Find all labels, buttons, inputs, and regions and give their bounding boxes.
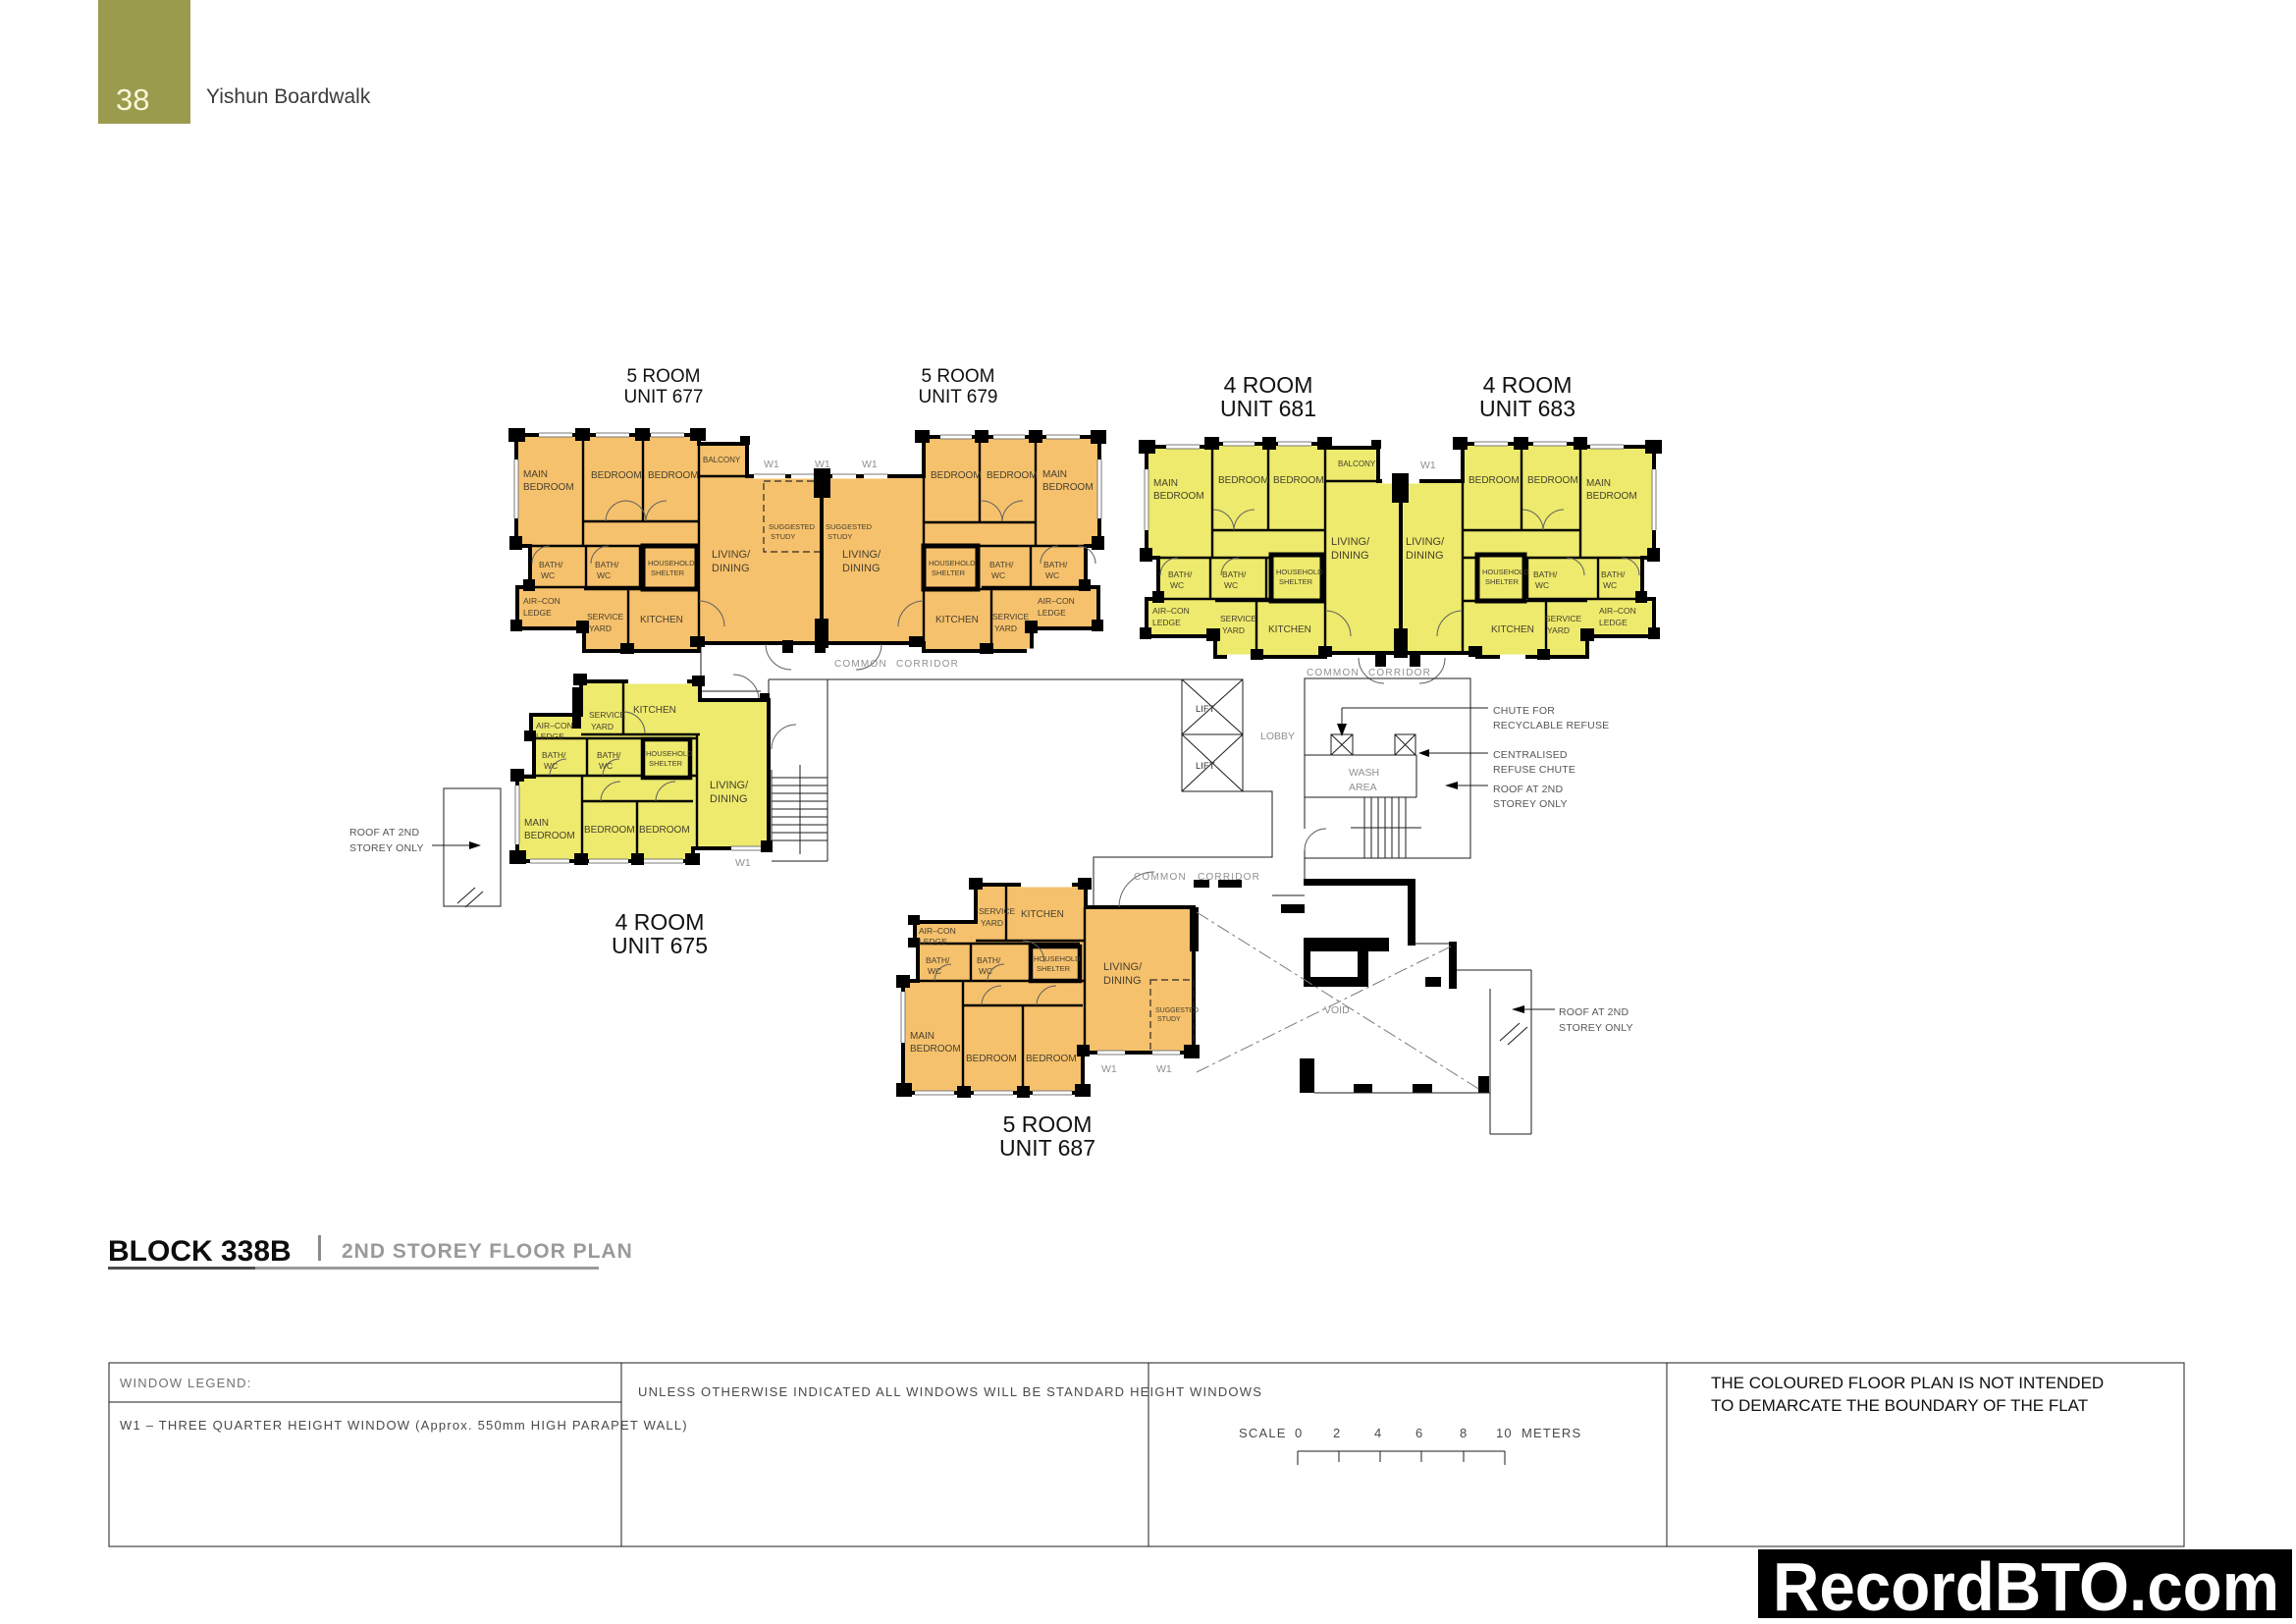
svg-text:4 ROOM: 4 ROOM xyxy=(1224,372,1313,398)
svg-text:WC: WC xyxy=(597,570,611,580)
svg-text:LEDGE: LEDGE xyxy=(1599,618,1628,627)
svg-text:YARD: YARD xyxy=(981,918,1003,928)
svg-text:COMMON: COMMON xyxy=(1307,668,1360,678)
svg-text:STUDY: STUDY xyxy=(1157,1016,1181,1023)
svg-text:HOUSEHOLD: HOUSEHOLD xyxy=(929,559,976,568)
svg-text:YARD: YARD xyxy=(1547,625,1570,635)
svg-text:0: 0 xyxy=(1295,1426,1303,1440)
svg-text:HOUSEHOLD: HOUSEHOLD xyxy=(648,559,695,568)
svg-text:WC: WC xyxy=(991,570,1005,580)
svg-text:BATH/: BATH/ xyxy=(595,560,619,569)
svg-text:BATH/: BATH/ xyxy=(542,750,566,760)
svg-text:MAIN: MAIN xyxy=(1042,469,1067,480)
svg-text:LIVING/: LIVING/ xyxy=(710,780,749,791)
svg-text:SERVICE: SERVICE xyxy=(1220,614,1256,623)
svg-text:BATH/: BATH/ xyxy=(989,560,1014,569)
svg-text:AIR–CON: AIR–CON xyxy=(919,926,956,936)
svg-text:SHELTER: SHELTER xyxy=(932,568,966,577)
svg-text:ROOF AT 2ND: ROOF AT 2ND xyxy=(1559,1006,1629,1018)
svg-text:LIVING/: LIVING/ xyxy=(1331,536,1370,548)
svg-text:CHUTE FOR: CHUTE FOR xyxy=(1493,705,1555,717)
svg-text:DINING: DINING xyxy=(710,793,748,805)
svg-text:KITCHEN: KITCHEN xyxy=(1268,624,1311,635)
svg-text:LIVING/: LIVING/ xyxy=(842,549,881,561)
svg-text:WC: WC xyxy=(1535,580,1549,590)
svg-text:SUGGESTED: SUGGESTED xyxy=(1155,1007,1199,1014)
svg-text:VOID: VOID xyxy=(1324,1004,1350,1016)
svg-text:UNLESS OTHERWISE INDICATED ALL: UNLESS OTHERWISE INDICATED ALL WINDOWS W… xyxy=(638,1384,1262,1399)
svg-text:BEDROOM: BEDROOM xyxy=(1586,491,1637,502)
svg-text:BEDROOM: BEDROOM xyxy=(584,825,635,836)
svg-text:SHELTER: SHELTER xyxy=(1279,577,1313,586)
svg-text:10: 10 xyxy=(1496,1426,1513,1440)
svg-text:WC: WC xyxy=(979,966,992,976)
svg-text:BATH/: BATH/ xyxy=(1222,569,1247,579)
svg-text:AIR–CON: AIR–CON xyxy=(536,721,573,731)
svg-text:YARD: YARD xyxy=(589,623,612,633)
svg-text:AIR–CON: AIR–CON xyxy=(1152,606,1190,616)
svg-text:KITCHEN: KITCHEN xyxy=(935,615,979,625)
svg-text:KITCHEN: KITCHEN xyxy=(633,705,676,716)
svg-text:DINING: DINING xyxy=(1406,550,1444,562)
svg-text:LIVING/: LIVING/ xyxy=(712,549,751,561)
svg-text:WC: WC xyxy=(1170,580,1184,590)
svg-text:BEDROOM: BEDROOM xyxy=(931,470,982,481)
svg-text:BEDROOM: BEDROOM xyxy=(1273,475,1324,486)
svg-text:STOREY ONLY: STOREY ONLY xyxy=(1493,798,1568,810)
svg-text:THE COLOURED FLOOR PLAN IS NOT: THE COLOURED FLOOR PLAN IS NOT INTENDED xyxy=(1711,1374,2104,1392)
svg-text:W1: W1 xyxy=(815,459,830,470)
svg-text:LOBBY: LOBBY xyxy=(1260,731,1295,742)
svg-text:8: 8 xyxy=(1460,1426,1468,1440)
svg-text:BEDROOM: BEDROOM xyxy=(1153,491,1204,502)
svg-text:BEDROOM: BEDROOM xyxy=(966,1054,1017,1064)
svg-text:4 ROOM: 4 ROOM xyxy=(615,909,705,935)
svg-text:BALCONY: BALCONY xyxy=(1338,460,1376,468)
svg-text:BEDROOM: BEDROOM xyxy=(1218,475,1269,486)
svg-text:W1: W1 xyxy=(764,459,779,470)
svg-text:DINING: DINING xyxy=(1331,550,1369,562)
svg-text:W1: W1 xyxy=(1101,1063,1117,1075)
svg-text:HOUSEHOLD: HOUSEHOLD xyxy=(1482,568,1529,576)
svg-text:MAIN: MAIN xyxy=(910,1031,934,1042)
svg-text:MAIN: MAIN xyxy=(1586,478,1611,489)
svg-text:W1 – THREE QUARTER HEIGHT WIND: W1 – THREE QUARTER HEIGHT WINDOW (Approx… xyxy=(120,1418,688,1433)
svg-text:WASH: WASH xyxy=(1349,767,1379,779)
svg-text:BEDROOM: BEDROOM xyxy=(1026,1054,1077,1064)
svg-text:BATH/: BATH/ xyxy=(1601,569,1626,579)
svg-text:BEDROOM: BEDROOM xyxy=(639,825,690,836)
svg-text:WC: WC xyxy=(1603,580,1617,590)
svg-text:SHELTER: SHELTER xyxy=(1485,577,1520,586)
svg-text:LEDGE: LEDGE xyxy=(1038,608,1066,618)
svg-text:BEDROOM: BEDROOM xyxy=(648,470,699,481)
svg-text:AIR–CON: AIR–CON xyxy=(1599,606,1636,616)
svg-text:HOUSEHOLD: HOUSEHOLD xyxy=(646,749,693,758)
svg-text:CENTRALISED: CENTRALISED xyxy=(1493,749,1568,761)
svg-text:SERVICE: SERVICE xyxy=(1545,614,1581,623)
svg-text:STUDY: STUDY xyxy=(771,532,795,541)
svg-text:COMMON: COMMON xyxy=(834,659,887,670)
svg-text:KITCHEN: KITCHEN xyxy=(1021,909,1064,920)
svg-text:SCALE: SCALE xyxy=(1239,1426,1287,1440)
svg-text:BLOCK 338B: BLOCK 338B xyxy=(108,1235,292,1268)
svg-text:BATH/: BATH/ xyxy=(926,955,950,965)
svg-text:2: 2 xyxy=(1333,1426,1341,1440)
svg-text:LEDGE: LEDGE xyxy=(919,937,947,947)
svg-text:UNIT 679: UNIT 679 xyxy=(919,387,998,407)
svg-text:BATH/: BATH/ xyxy=(539,560,563,569)
svg-text:COMMON: COMMON xyxy=(1134,872,1187,883)
svg-text:SUGGESTED: SUGGESTED xyxy=(769,522,816,531)
svg-text:WINDOW LEGEND:: WINDOW LEGEND: xyxy=(120,1376,252,1390)
svg-text:METERS: METERS xyxy=(1522,1426,1581,1440)
svg-text:KITCHEN: KITCHEN xyxy=(1491,624,1534,635)
svg-text:LEDGE: LEDGE xyxy=(536,731,564,741)
svg-text:5 ROOM: 5 ROOM xyxy=(922,366,995,387)
svg-text:WC: WC xyxy=(928,966,941,976)
svg-text:Yishun Boardwalk: Yishun Boardwalk xyxy=(206,85,371,108)
svg-text:UNIT 677: UNIT 677 xyxy=(624,387,704,407)
svg-text:BEDROOM: BEDROOM xyxy=(1468,475,1520,486)
svg-text:BEDROOM: BEDROOM xyxy=(1527,475,1578,486)
svg-text:MAIN: MAIN xyxy=(523,469,548,480)
svg-text:BEDROOM: BEDROOM xyxy=(1042,482,1094,493)
svg-text:BATH/: BATH/ xyxy=(1533,569,1558,579)
svg-text:BEDROOM: BEDROOM xyxy=(591,470,642,481)
svg-text:BATH/: BATH/ xyxy=(1168,569,1193,579)
svg-text:6: 6 xyxy=(1415,1426,1423,1440)
svg-text:2ND STOREY FLOOR PLAN: 2ND STOREY FLOOR PLAN xyxy=(342,1240,633,1263)
svg-text:SERVICE: SERVICE xyxy=(979,906,1015,916)
svg-text:YARD: YARD xyxy=(1222,625,1245,635)
svg-text:LEDGE: LEDGE xyxy=(1152,618,1181,627)
svg-text:4: 4 xyxy=(1374,1426,1382,1440)
svg-text:WC: WC xyxy=(544,761,558,771)
svg-text:LEDGE: LEDGE xyxy=(523,608,552,618)
svg-text:RECYCLABLE REFUSE: RECYCLABLE REFUSE xyxy=(1493,720,1609,731)
svg-text:38: 38 xyxy=(116,82,149,117)
svg-text:TO DEMARCATE THE BOUNDARY OF T: TO DEMARCATE THE BOUNDARY OF THE FLAT xyxy=(1711,1396,2088,1415)
svg-text:RecordBTO.com: RecordBTO.com xyxy=(1773,1548,2279,1624)
svg-text:LIFT: LIFT xyxy=(1196,761,1215,772)
svg-text:HOUSEHOLD: HOUSEHOLD xyxy=(1034,954,1081,963)
svg-text:SUGGESTED: SUGGESTED xyxy=(826,522,873,531)
svg-text:ROOF AT 2ND: ROOF AT 2ND xyxy=(349,827,419,839)
svg-text:UNIT 681: UNIT 681 xyxy=(1220,396,1316,421)
svg-text:MAIN: MAIN xyxy=(1153,478,1178,489)
svg-text:4 ROOM: 4 ROOM xyxy=(1483,372,1573,398)
svg-text:MAIN: MAIN xyxy=(524,818,549,829)
svg-text:STOREY ONLY: STOREY ONLY xyxy=(349,842,424,854)
svg-text:W1: W1 xyxy=(735,857,751,869)
svg-text:BATH/: BATH/ xyxy=(977,955,1001,965)
svg-text:SERVICE: SERVICE xyxy=(587,612,623,622)
svg-text:AIR–CON: AIR–CON xyxy=(1038,596,1075,606)
svg-text:UNIT 675: UNIT 675 xyxy=(612,933,708,958)
svg-text:5 ROOM: 5 ROOM xyxy=(627,366,701,387)
svg-text:DINING: DINING xyxy=(842,563,881,574)
svg-text:W1: W1 xyxy=(1156,1063,1172,1075)
svg-text:BALCONY: BALCONY xyxy=(703,456,741,464)
svg-text:SHELTER: SHELTER xyxy=(1037,964,1071,973)
svg-text:LIVING/: LIVING/ xyxy=(1406,536,1445,548)
svg-text:WC: WC xyxy=(541,570,555,580)
svg-text:BATH/: BATH/ xyxy=(1043,560,1068,569)
svg-text:DINING: DINING xyxy=(712,563,750,574)
svg-text:LIFT: LIFT xyxy=(1196,704,1215,715)
svg-text:UNIT 687: UNIT 687 xyxy=(999,1135,1095,1161)
svg-text:STOREY ONLY: STOREY ONLY xyxy=(1559,1022,1633,1034)
svg-text:DINING: DINING xyxy=(1103,975,1142,987)
svg-text:AREA: AREA xyxy=(1349,782,1377,793)
svg-text:UNIT 683: UNIT 683 xyxy=(1479,396,1575,421)
svg-text:W1: W1 xyxy=(1420,460,1436,471)
svg-text:CORRIDOR: CORRIDOR xyxy=(896,659,959,670)
svg-text:SERVICE: SERVICE xyxy=(992,612,1029,622)
svg-text:LIVING/: LIVING/ xyxy=(1103,961,1143,973)
svg-text:W1: W1 xyxy=(862,459,878,470)
svg-text:WC: WC xyxy=(1224,580,1238,590)
svg-text:KITCHEN: KITCHEN xyxy=(640,615,683,625)
svg-text:YARD: YARD xyxy=(994,623,1017,633)
svg-text:WC: WC xyxy=(599,761,613,771)
svg-text:BEDROOM: BEDROOM xyxy=(524,831,575,841)
svg-text:BEDROOM: BEDROOM xyxy=(987,470,1038,481)
svg-text:AIR–CON: AIR–CON xyxy=(523,596,561,606)
svg-text:5 ROOM: 5 ROOM xyxy=(1003,1111,1093,1137)
svg-text:HOUSEHOLD: HOUSEHOLD xyxy=(1276,568,1323,576)
svg-text:SERVICE: SERVICE xyxy=(589,710,625,720)
svg-text:CORRIDOR: CORRIDOR xyxy=(1368,668,1431,678)
svg-text:BEDROOM: BEDROOM xyxy=(523,482,574,493)
svg-text:WC: WC xyxy=(1045,570,1059,580)
svg-text:ROOF AT 2ND: ROOF AT 2ND xyxy=(1493,784,1563,795)
svg-text:SHELTER: SHELTER xyxy=(651,568,685,577)
svg-text:REFUSE CHUTE: REFUSE CHUTE xyxy=(1493,764,1575,776)
svg-text:BEDROOM: BEDROOM xyxy=(910,1044,961,1055)
svg-text:SHELTER: SHELTER xyxy=(649,759,683,768)
svg-text:YARD: YARD xyxy=(591,722,614,731)
svg-text:STUDY: STUDY xyxy=(828,532,852,541)
svg-text:BATH/: BATH/ xyxy=(597,750,621,760)
